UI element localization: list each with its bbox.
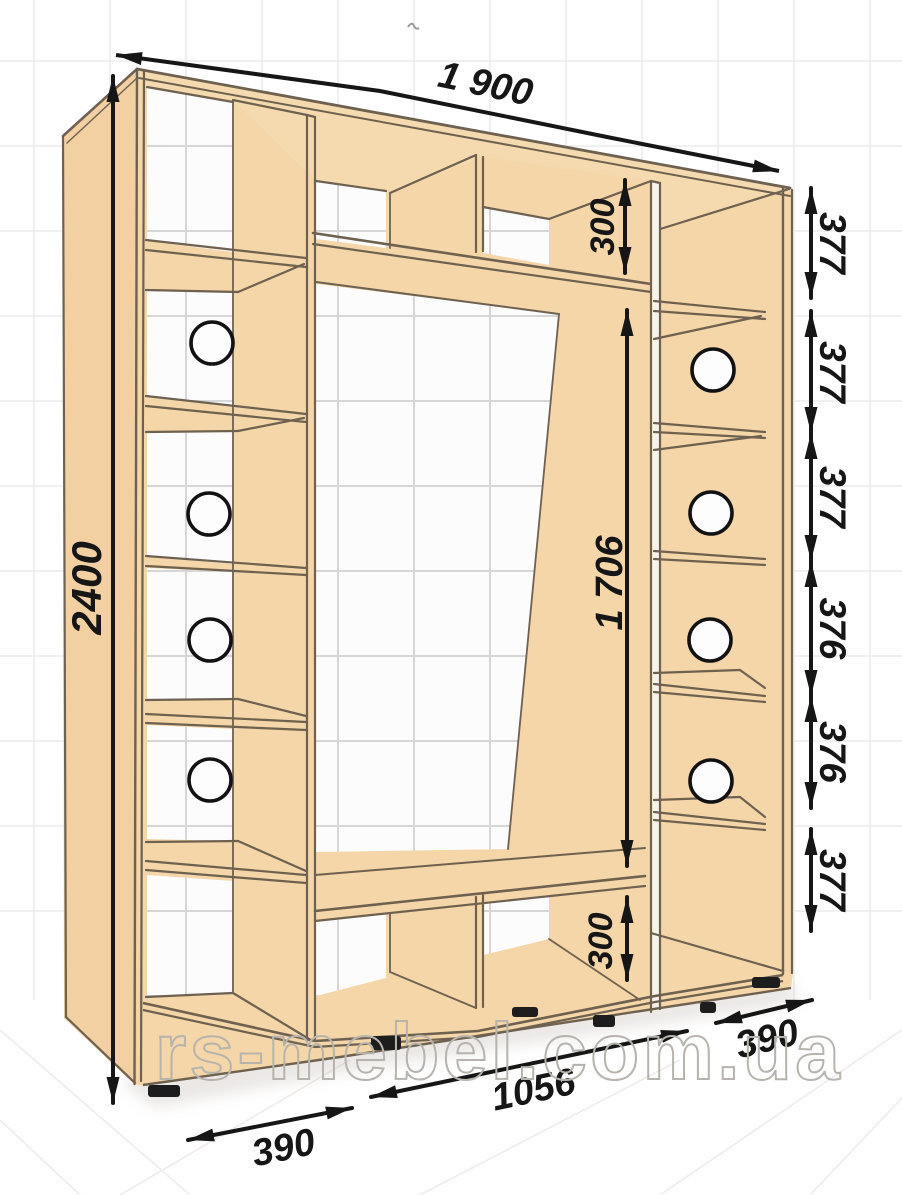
svg-text:300: 300 — [584, 199, 622, 256]
svg-text:rs-mebel.com.ua: rs-mebel.com.ua — [155, 1007, 843, 1096]
svg-text:300: 300 — [582, 913, 620, 970]
svg-text:377: 377 — [812, 466, 853, 530]
svg-text:377: 377 — [812, 341, 853, 405]
svg-text:1 706: 1 706 — [589, 535, 631, 631]
svg-text:376: 376 — [812, 721, 853, 783]
svg-text:2400: 2400 — [63, 541, 110, 635]
svg-text:376: 376 — [812, 598, 853, 660]
svg-text:377: 377 — [812, 849, 853, 913]
svg-text:377: 377 — [812, 212, 853, 276]
